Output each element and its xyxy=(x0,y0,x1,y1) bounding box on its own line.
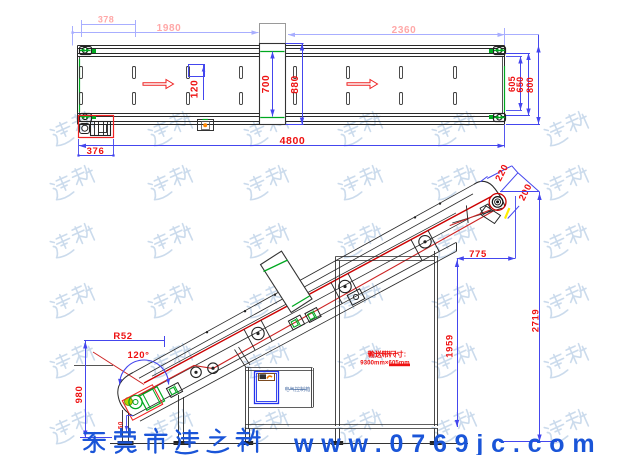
svg-text:650: 650 xyxy=(515,77,525,93)
svg-text:www.0769jc.com: www.0769jc.com xyxy=(293,430,602,455)
svg-text:800: 800 xyxy=(525,77,535,93)
svg-text:775: 775 xyxy=(469,249,487,260)
svg-text:378: 378 xyxy=(98,15,114,25)
svg-text:700: 700 xyxy=(261,75,272,94)
svg-text:120: 120 xyxy=(190,80,201,99)
svg-text:R52: R52 xyxy=(113,331,132,342)
svg-text:1980: 1980 xyxy=(157,23,182,34)
svg-text:50: 50 xyxy=(119,421,125,429)
svg-text:2719: 2719 xyxy=(531,309,542,333)
svg-text:120°: 120° xyxy=(127,350,149,361)
svg-text:2360: 2360 xyxy=(392,25,417,36)
svg-text:1959: 1959 xyxy=(445,334,456,358)
svg-text:880: 880 xyxy=(290,75,301,94)
svg-text:376: 376 xyxy=(87,146,105,157)
svg-text:980: 980 xyxy=(74,386,85,404)
svg-text:输送带尺寸:: 输送带尺寸: xyxy=(368,350,407,359)
svg-text:4800: 4800 xyxy=(280,135,306,147)
